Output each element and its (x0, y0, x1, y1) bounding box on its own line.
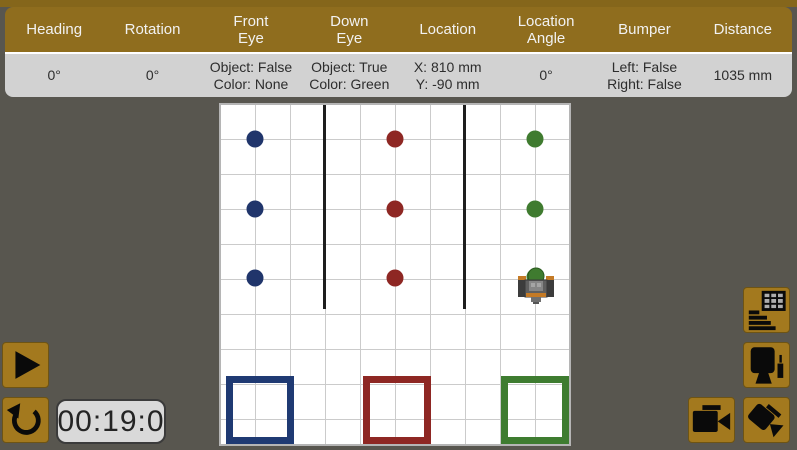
sensor-column-rotation: Rotation (103, 7, 201, 52)
ball-green-2 (527, 201, 544, 218)
sensor-column-location-angle: Location Angle (497, 7, 595, 52)
table-and-bars-icon (744, 287, 789, 333)
target-square-blue (226, 376, 294, 444)
ball-red-2 (387, 201, 404, 218)
ball-green-1 (527, 131, 544, 148)
app-window: Heading Rotation Front Eye Down Eye Loca… (0, 0, 797, 450)
reset-button[interactable] (2, 397, 49, 443)
ball-blue-1 (247, 131, 264, 148)
sensor-values-row: 0° 0° Object: False Color: None Object: … (5, 52, 792, 97)
target-square-red (363, 376, 431, 444)
sensor-value-bumper: Left: False Right: False (595, 54, 693, 97)
play-icon (3, 342, 48, 388)
timer-display: 00:19:0 (56, 399, 166, 444)
ball-blue-3 (247, 270, 264, 287)
reset-icon (3, 397, 48, 443)
camera-tilt-button[interactable] (743, 397, 790, 443)
simulation-field (219, 103, 571, 446)
video-camera-button[interactable] (688, 397, 735, 443)
ball-red-1 (387, 131, 404, 148)
sensor-value-down-eye: Object: True Color: Green (300, 54, 398, 97)
sensor-column-down-eye: Down Eye (300, 7, 398, 52)
sensor-value-distance: 1035 mm (694, 54, 792, 97)
sensor-panel: Heading Rotation Front Eye Down Eye Loca… (5, 7, 792, 97)
sensor-column-heading: Heading (5, 7, 103, 52)
sensor-column-bumper: Bumper (595, 7, 693, 52)
sensor-value-heading: 0° (5, 54, 103, 97)
sensor-column-location: Location (399, 7, 497, 52)
sensor-header-row: Heading Rotation Front Eye Down Eye Loca… (5, 7, 792, 52)
ball-red-3 (387, 270, 404, 287)
play-button[interactable] (2, 342, 49, 388)
target-square-green (501, 376, 569, 444)
robot-sprite (516, 267, 556, 305)
video-camera-icon (689, 397, 734, 443)
monitor-and-marker-icon (744, 342, 789, 388)
sensor-value-rotation: 0° (103, 54, 201, 97)
sensor-value-location: X: 810 mm Y: -90 mm (399, 54, 497, 97)
sensor-value-location-angle: 0° (497, 54, 595, 97)
tilted-video-camera-icon (744, 397, 789, 443)
field-wall-right (463, 105, 466, 309)
sensor-column-front-eye: Front Eye (202, 7, 300, 52)
top-strip (0, 0, 797, 7)
sensor-value-front-eye: Object: False Color: None (202, 54, 300, 97)
data-log-button[interactable] (743, 287, 790, 333)
field-wall-left (323, 105, 326, 309)
field-grid (221, 105, 569, 444)
sensor-column-distance: Distance (694, 7, 792, 52)
ball-blue-2 (247, 201, 264, 218)
monitor-button[interactable] (743, 342, 790, 388)
